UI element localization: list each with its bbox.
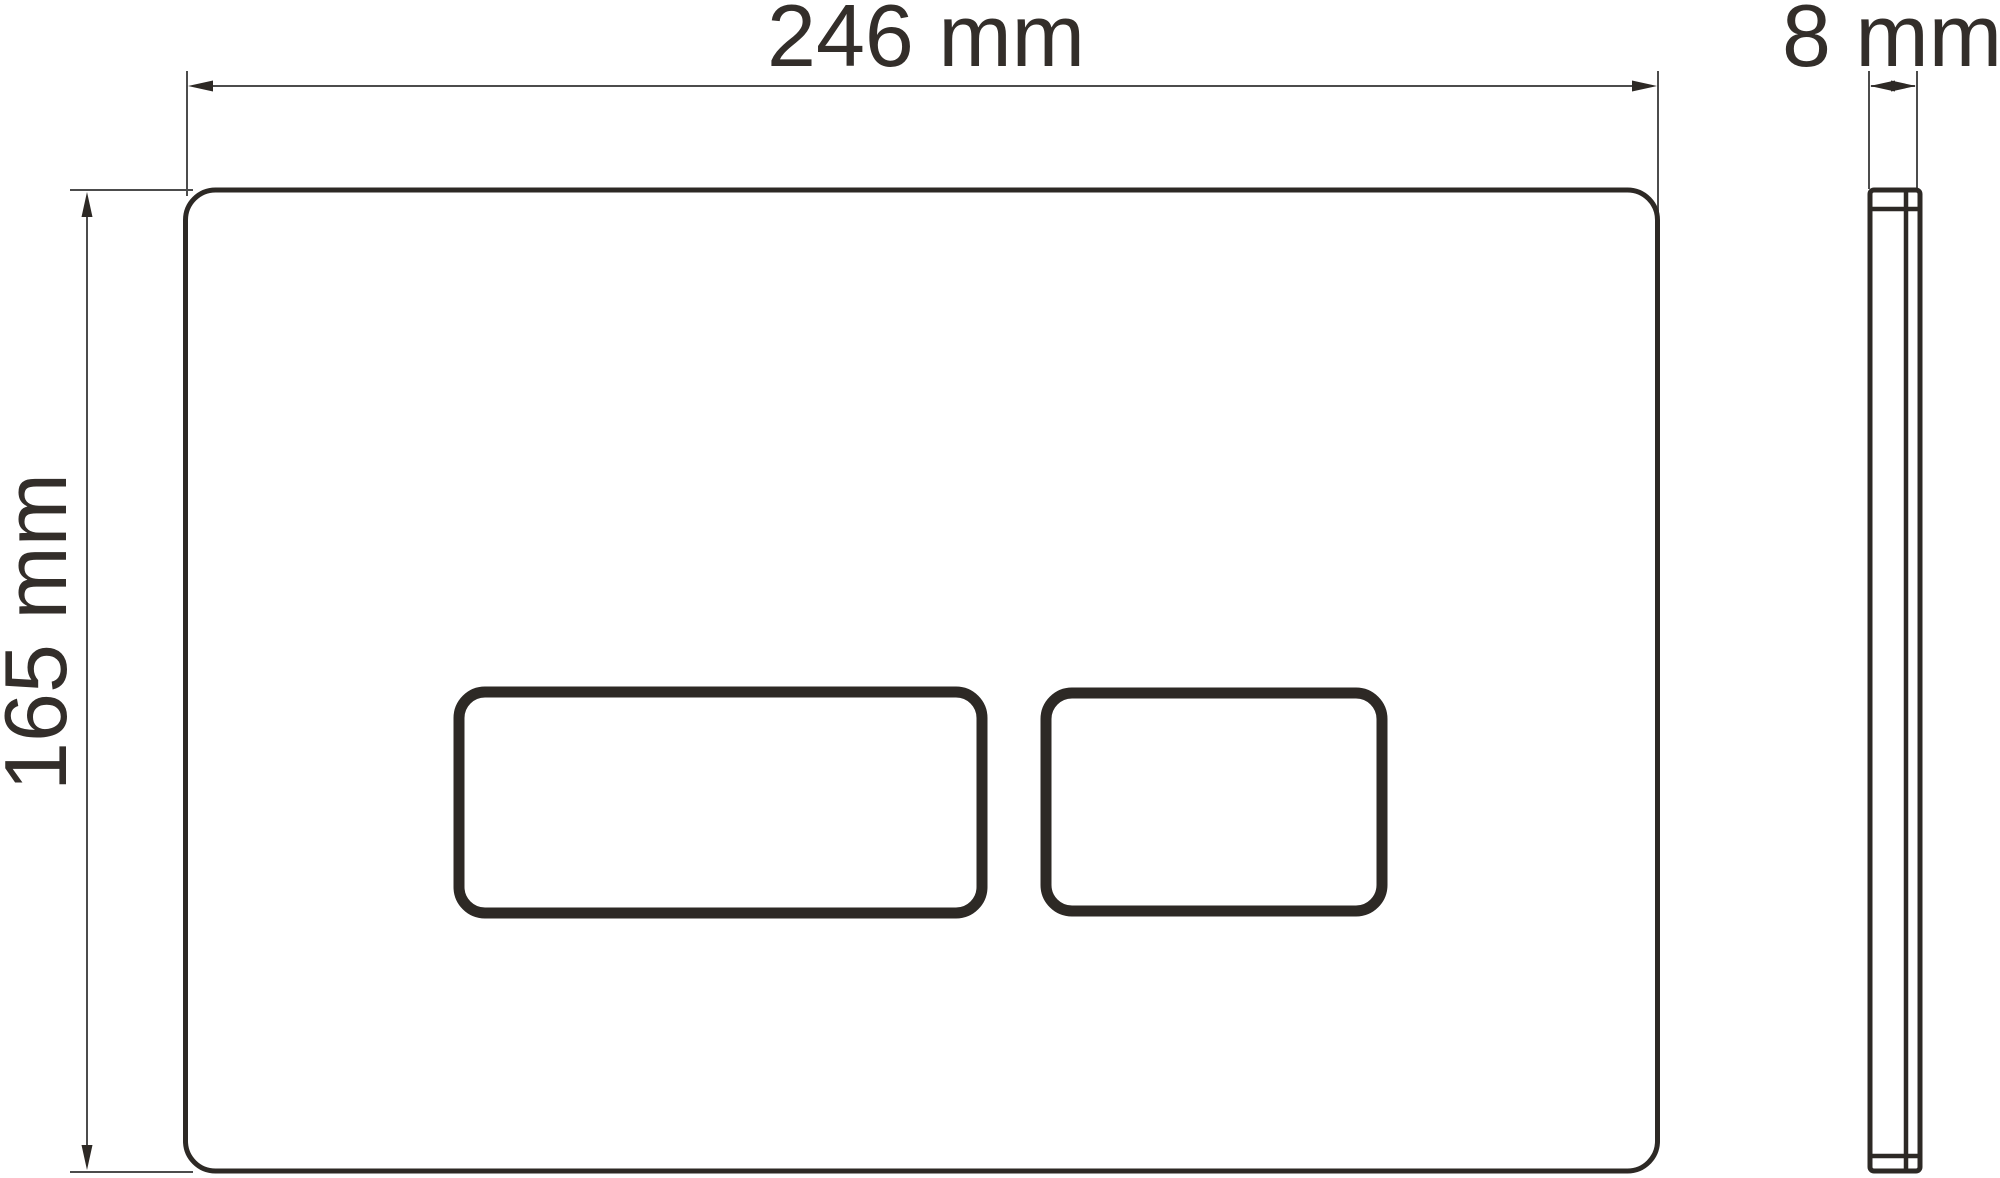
height-dimension: 165 mm <box>0 190 193 1172</box>
depth-dimension: 8 mm <box>1782 0 2000 189</box>
depth-dimension-label: 8 mm <box>1782 0 2000 85</box>
technical-drawing: 246 mm 165 mm 8 mm <box>0 0 2000 1178</box>
side-view <box>1870 190 1920 1171</box>
side-profile-outline <box>1870 190 1920 1171</box>
plate-outline <box>186 190 1658 1171</box>
width-arrow-left-icon <box>188 81 213 92</box>
height-arrow-bottom-icon <box>82 1145 93 1170</box>
width-dimension: 246 mm <box>187 0 1658 214</box>
flush-button-large <box>459 692 982 913</box>
technical-drawing-canvas: 246 mm 165 mm 8 mm <box>0 0 2000 1178</box>
height-dimension-label: 165 mm <box>0 473 85 791</box>
front-view <box>186 190 1658 1171</box>
flush-button-small <box>1046 693 1382 911</box>
width-arrow-right-icon <box>1632 81 1657 92</box>
height-arrow-top-icon <box>82 192 93 217</box>
width-dimension-label: 246 mm <box>767 0 1085 85</box>
